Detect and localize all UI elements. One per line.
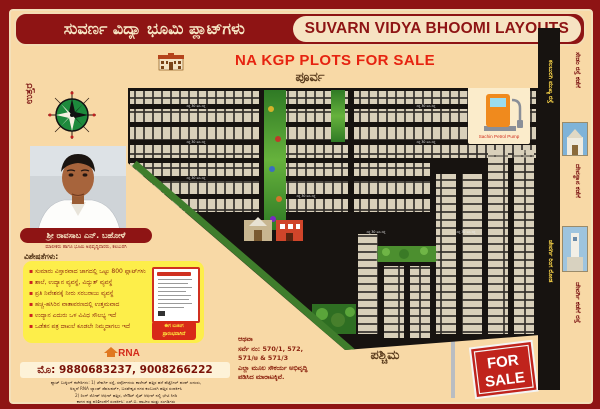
vertical-road <box>259 88 264 230</box>
temple-photo <box>562 122 588 156</box>
direction-north-label: ಉತ್ತರ <box>24 54 35 104</box>
svg-text:ರಸ್ತೆ 30 ಅಡಿ ರಸ್ತೆ: ರಸ್ತೆ 30 ಅಡಿ ರಸ್ತೆ <box>457 230 476 234</box>
school-building-icon <box>158 51 184 71</box>
header-banner: ಸುವರ್ಣ ವಿದ್ಯಾ ಭೂಮಿ ಪ್ಲಾಟ್‌ಗಳು SUVARN VID… <box>14 12 586 46</box>
phone-numbers: ಮೊ: 9880683237, 9008266222 <box>20 362 230 378</box>
vertical-road <box>348 88 354 230</box>
garden-strip <box>264 90 286 230</box>
title-kannada: ಸುವರ್ಣ ವಿದ್ಯಾ ಭೂಮಿ ಪ್ಲಾಟ್‌ಗಳು <box>16 19 293 39</box>
right-label-bottom: ಜೇವರ್ಗಿ ಕಡೆಗೆ ರಸ್ತೆ <box>573 282 582 323</box>
svg-text:ರಸ್ತೆ 30 ಅಡಿ ರಸ್ತೆ: ರಸ್ತೆ 30 ಅಡಿ ರಸ್ತೆ <box>187 104 206 108</box>
svg-text:ರಸ್ತೆ 30 ಅಡಿ ರಸ್ತೆ: ರಸ್ತೆ 30 ಅಡಿ ರಸ್ತೆ <box>367 230 386 234</box>
petrol-pump-label: Sachin Petrol Pump <box>479 134 520 139</box>
right-label-top: ಸೇಡಂ ರಸ್ತೆ ಕಡೆಗೆ <box>573 52 582 88</box>
right-label-mid: ದೇವಸ್ಥಾನ ಕಡೆಗೆ <box>573 164 582 198</box>
temple-image <box>244 217 272 241</box>
sale-headline: NA KGP PLOTS FOR SALE <box>205 52 465 69</box>
road-strip-label-top: ಕಲಬುರಗಿ ಮುಖ್ಯ ರಸ್ತೆ <box>546 60 554 103</box>
tower-photo <box>562 226 588 272</box>
petrol-pump: Sachin Petrol Pump <box>468 86 530 144</box>
garden-strip <box>331 90 345 142</box>
school-image <box>276 220 303 241</box>
svg-text:ರಸ್ತೆ 30 ಅಡಿ ರಸ್ತೆ: ರಸ್ತೆ 30 ಅಡಿ ರಸ್ತೆ <box>417 104 436 108</box>
svg-text:ರಸ್ತೆ 30 ಅಡಿ ರಸ್ತೆ: ರಸ್ತೆ 30 ಅಡಿ ರಸ್ತೆ <box>187 176 206 180</box>
logo-house-icon <box>104 347 118 357</box>
plots-layout-map: Sachin Petrol Pump <box>126 84 542 356</box>
fine-print: ಪ್ಲಾಟ್ ಬುಕ್ಕಿಂಗ್ ಕಚೇರಿಗಳು: 1) ಜೇವರ್ಗಿ ರಸ… <box>20 380 232 405</box>
road-strip-label-bottom: ಜೇವರ್ಗಿ ರಿಂಗ ರೋಡ <box>546 240 554 282</box>
svg-text:ರಸ್ತೆ 30 ಅಡಿ ರಸ್ತೆ: ರಸ್ತೆ 30 ಅಡಿ ರಸ್ತೆ <box>187 140 206 144</box>
layout-poster: { "header": { "title_kannada": "ಸುವರ್ಣ ವ… <box>0 0 600 409</box>
owner-portrait-photo <box>30 146 126 230</box>
direction-east-label: ಪೂರ್ವ <box>250 70 370 85</box>
compass-rose-icon <box>46 90 98 140</box>
svg-text:ರಸ್ತೆ 30 ಅಡಿ ರಸ್ತೆ: ರಸ್ತೆ 30 ಅಡಿ ರಸ್ತೆ <box>297 194 316 198</box>
park-image <box>376 246 438 262</box>
svg-text:ರಸ್ತೆ 30 ಅಡಿ ರಸ್ತೆ: ರಸ್ತೆ 30 ಅಡಿ ರಸ್ತೆ <box>417 140 436 144</box>
